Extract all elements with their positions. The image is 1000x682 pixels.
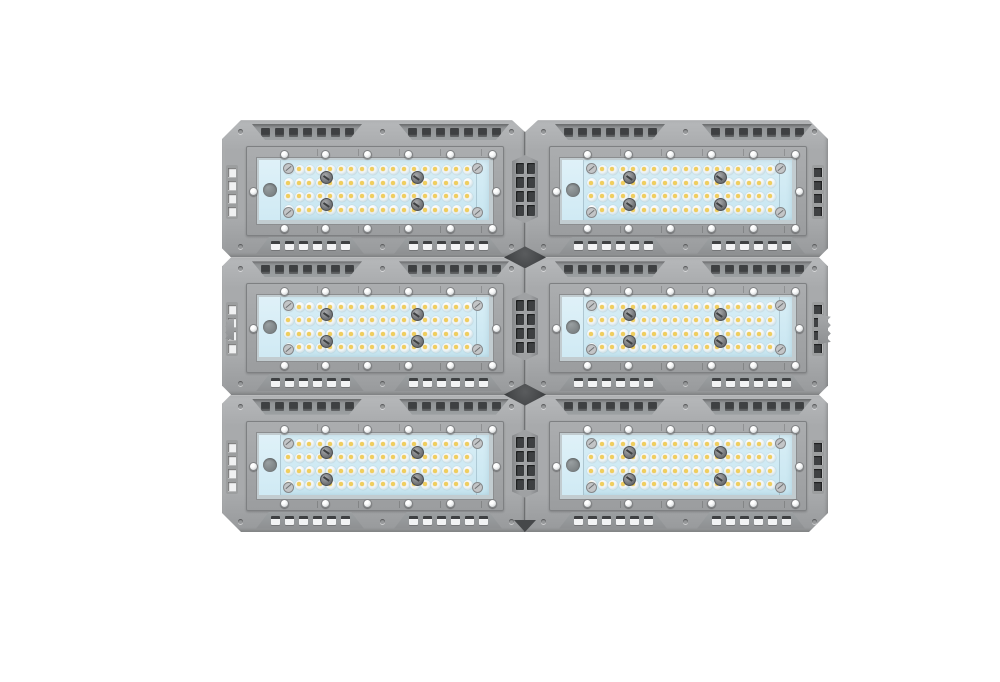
led-chip (650, 316, 660, 326)
led-chip (337, 329, 347, 339)
led-chip (734, 466, 744, 476)
vent-hole (327, 378, 336, 387)
led-chip (442, 453, 452, 463)
glass-corner-screw (586, 163, 597, 174)
edge-screw (683, 129, 688, 134)
frame-screw (749, 150, 758, 159)
vent-group (399, 399, 509, 415)
vent-hole (726, 378, 735, 387)
vent-hole (711, 265, 720, 274)
frame-screw (583, 499, 592, 508)
led-chip (703, 165, 713, 175)
vent-hole (754, 378, 763, 387)
vent-hole (289, 128, 298, 137)
led-chip (734, 192, 744, 202)
panel-port-hole (566, 458, 580, 472)
vent-hole (327, 516, 336, 525)
led-chip (598, 316, 608, 326)
vent-hole (313, 241, 322, 250)
edge-screw (812, 519, 817, 524)
led-chip (703, 316, 713, 326)
frame-screw (321, 499, 330, 508)
led-chip (337, 192, 347, 202)
frame-screw (791, 224, 800, 233)
led-module-r2c1 (222, 257, 525, 394)
heatsink-slot (516, 342, 524, 353)
glass-corner-screw (283, 163, 294, 174)
led-chip (431, 302, 441, 312)
led-chip (734, 329, 744, 339)
led-chip (442, 165, 452, 175)
led-chip (379, 178, 389, 188)
vent-hole (630, 241, 639, 250)
led-chip (640, 343, 650, 353)
vent-group (559, 512, 667, 529)
frame-screw (280, 224, 289, 233)
vent-hole (285, 241, 294, 250)
led-chip (358, 316, 368, 326)
edge-screw (509, 244, 514, 249)
vent-hole (630, 516, 639, 525)
module-bottom-vent-edge (222, 510, 525, 532)
vent-hole (630, 378, 639, 387)
led-chip (671, 439, 681, 449)
led-chip (745, 343, 755, 353)
frame-screw (488, 499, 497, 508)
led-array (587, 163, 776, 217)
vent-hole (588, 516, 597, 525)
led-chip (640, 466, 650, 476)
glass-corner-screw (775, 344, 786, 355)
vent-hole (606, 128, 615, 137)
frame-screw (363, 150, 372, 159)
vent-hole (620, 265, 629, 274)
vent-hole (602, 378, 611, 387)
vent-hole (275, 128, 284, 137)
glass-corner-screw (472, 482, 483, 493)
heatsink-slot (527, 191, 535, 202)
panel-port-hole (566, 183, 580, 197)
led-chip (745, 192, 755, 202)
side-slot (228, 168, 236, 177)
glass-corner-screw (283, 482, 294, 493)
vent-hole (712, 241, 721, 250)
vent-hole (341, 516, 350, 525)
led-chip (671, 165, 681, 175)
vent-hole (781, 402, 790, 411)
led-chip (347, 165, 357, 175)
panel-screw (623, 446, 636, 459)
led-chip (755, 480, 765, 490)
vent-hole (648, 128, 657, 137)
vent-hole (725, 265, 734, 274)
led-chip (682, 439, 692, 449)
led-chip (305, 302, 315, 312)
led-chip (379, 480, 389, 490)
vent-hole (768, 516, 777, 525)
glass-corner-screw (472, 163, 483, 174)
led-chip (400, 439, 410, 449)
vent-hole (740, 378, 749, 387)
vent-hole (313, 378, 322, 387)
led-chip (661, 480, 671, 490)
frame-screw (707, 224, 716, 233)
led-module-r3c2 (525, 395, 828, 532)
led-chip (640, 165, 650, 175)
led-chip (608, 165, 618, 175)
edge-screw (509, 381, 514, 386)
glass-corner-screw (472, 344, 483, 355)
frame-screw (488, 425, 497, 434)
vent-hole (465, 378, 474, 387)
led-chip (442, 343, 452, 353)
heatsink-slot (527, 437, 535, 448)
frame-screw (666, 224, 675, 233)
vent-hole (634, 402, 643, 411)
vent-hole (588, 241, 597, 250)
vent-hole (479, 378, 488, 387)
led-chip (745, 165, 755, 175)
led-chip (295, 316, 305, 326)
edge-screw (683, 381, 688, 386)
vent-hole (436, 128, 445, 137)
led-chip (598, 453, 608, 463)
vent-hole (711, 128, 720, 137)
heatsink-slot (527, 479, 535, 490)
led-chip (692, 466, 702, 476)
led-chip (692, 302, 702, 312)
led-chip (661, 178, 671, 188)
frame-screw (707, 499, 716, 508)
led-chip (295, 329, 305, 339)
side-slot (228, 443, 236, 452)
vent-hole (754, 516, 763, 525)
led-chip (400, 302, 410, 312)
led-chip (442, 192, 452, 202)
led-chip (305, 192, 315, 202)
led-chip (755, 165, 765, 175)
edge-screw (541, 266, 546, 271)
vent-hole (261, 128, 270, 137)
led-chip (682, 453, 692, 463)
module-panel-frame (549, 421, 807, 511)
edge-screw (380, 404, 385, 409)
frame-screw (249, 462, 258, 471)
heatsink-slot (516, 328, 524, 339)
frame-screw (404, 499, 413, 508)
vent-group (697, 374, 805, 391)
panel-port-hole (263, 458, 277, 472)
vent-hole (437, 241, 446, 250)
edge-screw (541, 404, 546, 409)
led-chip (431, 466, 441, 476)
module-panel-frame (246, 283, 504, 373)
vent-hole (648, 402, 657, 411)
frame-screw (446, 150, 455, 159)
vent-hole (767, 402, 776, 411)
led-chip (389, 302, 399, 312)
side-heatsink-slots (226, 440, 238, 494)
led-chip (337, 302, 347, 312)
led-chip (587, 316, 597, 326)
led-glass-panel (259, 160, 489, 220)
vent-group (555, 399, 665, 415)
led-chip (284, 178, 294, 188)
panel-screw (714, 446, 727, 459)
module-bottom-vent-edge (222, 372, 525, 394)
led-chip (284, 316, 294, 326)
led-chip (608, 453, 618, 463)
frame-screw (363, 499, 372, 508)
led-chip (337, 439, 347, 449)
vent-hole (285, 516, 294, 525)
led-chip (682, 329, 692, 339)
led-chip (368, 453, 378, 463)
frame-screw (488, 361, 497, 370)
led-chip (766, 178, 776, 188)
led-chip (598, 480, 608, 490)
led-chip (379, 466, 389, 476)
led-chip (692, 205, 702, 215)
vent-hole (578, 128, 587, 137)
vent-hole (726, 516, 735, 525)
vent-hole (574, 516, 583, 525)
led-chip (640, 205, 650, 215)
led-chip (337, 316, 347, 326)
led-chip (692, 439, 702, 449)
led-chip (766, 316, 776, 326)
glass-bezel (256, 294, 494, 362)
led-chip (745, 439, 755, 449)
led-chip (734, 316, 744, 326)
led-chip (671, 480, 681, 490)
panel-screw (714, 473, 727, 486)
vent-hole (423, 241, 432, 250)
led-chip (305, 480, 315, 490)
frame-screw (446, 224, 455, 233)
led-chip (347, 329, 357, 339)
led-chip (671, 343, 681, 353)
led-chip (284, 466, 294, 476)
frame-screw (749, 224, 758, 233)
vent-hole (648, 265, 657, 274)
led-chip (368, 480, 378, 490)
vent-hole (331, 402, 340, 411)
vent-hole (317, 128, 326, 137)
vent-hole (739, 402, 748, 411)
vent-hole (606, 265, 615, 274)
led-chip (692, 343, 702, 353)
led-chip (661, 205, 671, 215)
vent-hole (592, 402, 601, 411)
led-chip (671, 178, 681, 188)
vent-group (256, 237, 364, 254)
vent-hole (422, 265, 431, 274)
heatsink-slot (527, 328, 535, 339)
glass-corner-screw (283, 438, 294, 449)
vent-hole (299, 516, 308, 525)
vent-group (252, 261, 362, 277)
led-chip (295, 178, 305, 188)
led-chip (305, 453, 315, 463)
led-chip (640, 329, 650, 339)
led-chip (692, 178, 702, 188)
led-chip (442, 480, 452, 490)
panel-screw (411, 446, 424, 459)
edge-screw (541, 129, 546, 134)
vent-hole (331, 128, 340, 137)
led-chip (734, 205, 744, 215)
vent-group (394, 237, 502, 254)
led-chip (766, 329, 776, 339)
led-chip (295, 466, 305, 476)
vent-hole (271, 378, 280, 387)
glass-bezel (256, 157, 494, 225)
led-chip (671, 466, 681, 476)
heatsink-slot (516, 479, 524, 490)
heatsink-slot (527, 163, 535, 174)
led-chip (452, 480, 462, 490)
glass-corner-screw (586, 482, 597, 493)
led-chip (671, 453, 681, 463)
led-chip (734, 453, 744, 463)
led-chip (400, 205, 410, 215)
vent-hole (478, 265, 487, 274)
edge-screw (238, 381, 243, 386)
led-chip (692, 192, 702, 202)
led-chip (305, 165, 315, 175)
led-chip (368, 165, 378, 175)
vent-hole (767, 128, 776, 137)
led-chip (295, 480, 305, 490)
panel-screw (623, 198, 636, 211)
glass-corner-screw (472, 300, 483, 311)
vent-hole (564, 402, 573, 411)
led-chip (608, 480, 618, 490)
vent-hole (436, 402, 445, 411)
led-chip (347, 343, 357, 353)
vent-hole (271, 516, 280, 525)
led-glass-panel (562, 160, 792, 220)
vent-hole (303, 128, 312, 137)
vent-hole (602, 516, 611, 525)
led-chip (766, 192, 776, 202)
glass-corner-screw (472, 207, 483, 218)
module-top-vent-edge (222, 121, 525, 144)
led-chip (452, 453, 462, 463)
frame-screw (446, 425, 455, 434)
glass-corner-screw (775, 207, 786, 218)
frame-screw (624, 499, 633, 508)
led-chip (598, 302, 608, 312)
led-chip (745, 480, 755, 490)
led-chip (400, 165, 410, 175)
vent-hole (768, 241, 777, 250)
led-chip (734, 480, 744, 490)
vent-hole (592, 265, 601, 274)
led-chip (608, 316, 618, 326)
led-chip (661, 453, 671, 463)
vent-hole (644, 516, 653, 525)
led-chip (431, 178, 441, 188)
led-chip (650, 453, 660, 463)
led-chip (682, 205, 692, 215)
heatsink-slot (516, 465, 524, 476)
led-chip (682, 343, 692, 353)
vent-hole (564, 128, 573, 137)
vent-hole (478, 128, 487, 137)
led-chip (368, 316, 378, 326)
led-chip (650, 178, 660, 188)
led-chip (703, 466, 713, 476)
led-chip (587, 329, 597, 339)
vent-hole (606, 402, 615, 411)
vent-hole (451, 241, 460, 250)
edge-screw (509, 404, 514, 409)
edge-screw (683, 404, 688, 409)
led-chip (661, 302, 671, 312)
frame-screw (624, 224, 633, 233)
module-panel-frame (549, 146, 807, 236)
led-chip (358, 178, 368, 188)
led-chip (608, 302, 618, 312)
side-slot (228, 194, 236, 203)
heatsink-slot (527, 205, 535, 216)
edge-screw (238, 129, 243, 134)
side-slot (228, 482, 236, 491)
heatsink-slot (527, 177, 535, 188)
panel-screw (411, 171, 424, 184)
panel-screw (714, 198, 727, 211)
led-chip (734, 165, 744, 175)
led-chip (305, 205, 315, 215)
led-chip (379, 192, 389, 202)
vent-hole (317, 402, 326, 411)
module-bottom-vent-edge (222, 235, 525, 257)
led-chip (358, 480, 368, 490)
vent-hole (451, 516, 460, 525)
vent-hole (437, 516, 446, 525)
edge-screw (238, 519, 243, 524)
led-chip (755, 439, 765, 449)
frame-screw (791, 361, 800, 370)
edge-screw (541, 519, 546, 524)
led-chip (755, 343, 765, 353)
led-chip (368, 302, 378, 312)
vent-hole (423, 378, 432, 387)
frame-screw (795, 462, 804, 471)
frame-screw (280, 425, 289, 434)
vent-hole (289, 265, 298, 274)
frame-screw (280, 150, 289, 159)
heatsink-slot (516, 177, 524, 188)
led-chip (608, 439, 618, 449)
led-chip (640, 316, 650, 326)
led-chip (650, 205, 660, 215)
led-chip (463, 316, 473, 326)
led-chip (431, 453, 441, 463)
led-chip (379, 205, 389, 215)
glass-corner-screw (472, 438, 483, 449)
heatsink-slot (516, 191, 524, 202)
product-photo-canvas (0, 0, 1000, 682)
led-chip (358, 329, 368, 339)
led-chip (358, 466, 368, 476)
led-chip (442, 205, 452, 215)
vent-hole (740, 241, 749, 250)
side-slot (228, 456, 236, 465)
vent-hole (712, 516, 721, 525)
